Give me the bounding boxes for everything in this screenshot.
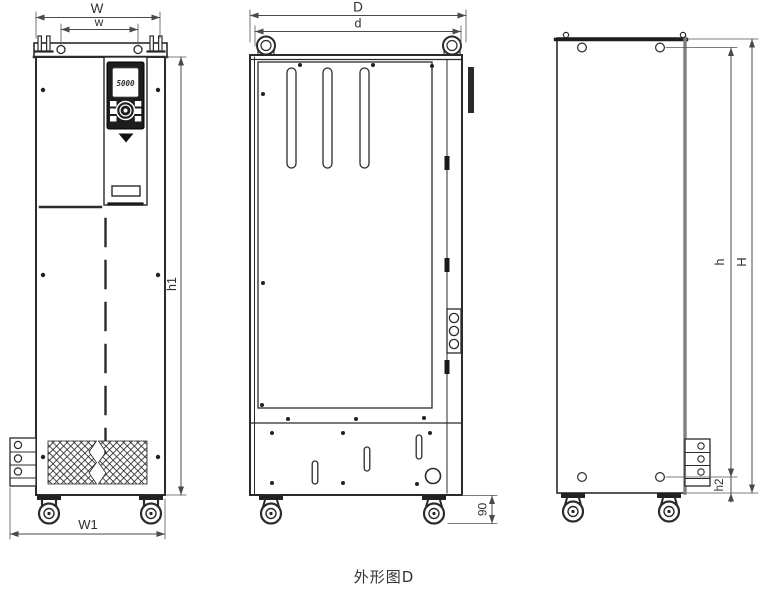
dim-label-h2: h2 [714, 479, 726, 492]
dim-label-h: h [713, 258, 727, 265]
lifting-ring-icon [443, 37, 461, 56]
eyebolt-tip [563, 32, 568, 37]
caster-icon [657, 493, 681, 522]
caster-icon [139, 495, 163, 524]
dim-label-D: D [353, 0, 363, 15]
dim-label-d: d [355, 17, 362, 31]
keypad-display-value: 5000 [116, 79, 135, 88]
cabinet-rear-body [557, 38, 685, 493]
lifting-ring-icon [257, 37, 275, 56]
rear-view: h H h2 [556, 32, 759, 521]
eyebolt-tip [680, 32, 685, 37]
outline-drawing-canvas: 5000 [0, 0, 768, 595]
side-view: D d 90 [250, 0, 497, 524]
dim-label-W: W [91, 1, 104, 16]
caster-icon [422, 495, 446, 524]
hinge-block [447, 309, 461, 353]
drawing-caption: 外形图D [0, 566, 768, 587]
caster-icon [259, 495, 283, 524]
caster-icon [561, 493, 585, 522]
nameplate-label [112, 186, 140, 196]
door-handle [468, 67, 474, 113]
plate-hole [57, 46, 65, 54]
caster-icon [37, 495, 61, 524]
front-view: 5000 [10, 1, 186, 539]
side-bracket [10, 438, 36, 486]
dim-label-90: 90 [476, 503, 490, 517]
dim-label-h1: h1 [165, 277, 179, 291]
cable-entry-hole [426, 469, 441, 484]
dim-label-W1: W1 [78, 517, 98, 532]
side-bracket [685, 439, 710, 486]
outline-drawing: 5000 [0, 0, 768, 595]
plate-hole [134, 46, 142, 54]
cabinet-side-body [250, 55, 462, 495]
dim-label-w: w [94, 15, 104, 29]
keypad-panel: 5000 [107, 62, 144, 129]
top-plate [34, 43, 167, 57]
dim-label-H: H [734, 257, 749, 266]
